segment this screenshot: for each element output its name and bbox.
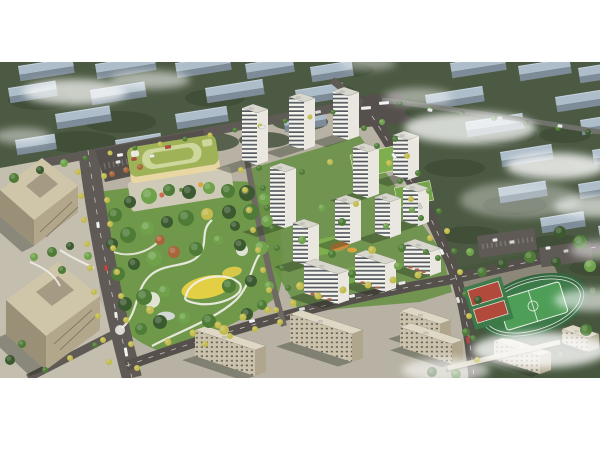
tree xyxy=(92,342,98,348)
tree xyxy=(84,252,92,260)
tree xyxy=(264,205,270,211)
tree xyxy=(128,341,134,347)
tree xyxy=(269,225,275,231)
tree xyxy=(161,216,173,228)
tree xyxy=(418,215,424,221)
tree xyxy=(408,196,414,202)
tree xyxy=(202,341,208,347)
tree xyxy=(213,235,223,245)
vehicle xyxy=(96,222,100,228)
tree xyxy=(273,307,279,313)
mist-cloud xyxy=(110,71,190,89)
tree xyxy=(128,258,140,270)
tree xyxy=(114,269,120,275)
tree xyxy=(315,293,322,300)
tree xyxy=(107,221,113,227)
tree xyxy=(462,291,468,297)
tree xyxy=(155,235,165,245)
mist-cloud xyxy=(384,88,452,106)
tree xyxy=(124,196,136,208)
tree xyxy=(178,210,194,226)
tree xyxy=(242,187,248,193)
vehicle xyxy=(545,246,550,250)
tree xyxy=(415,170,421,176)
tree xyxy=(260,267,266,273)
tree xyxy=(353,201,359,207)
tree xyxy=(227,333,233,339)
tree xyxy=(415,272,422,279)
vehicle xyxy=(115,160,120,164)
tree xyxy=(394,262,402,270)
tree xyxy=(386,160,392,166)
tree xyxy=(374,143,380,149)
tree xyxy=(182,185,196,199)
tree xyxy=(390,277,397,284)
vehicle xyxy=(131,157,136,161)
tree xyxy=(298,236,306,244)
tree xyxy=(444,228,450,234)
tree xyxy=(338,218,346,226)
tree xyxy=(189,242,203,256)
vehicle xyxy=(563,249,568,253)
tree xyxy=(146,250,162,266)
tree xyxy=(279,265,285,271)
tree xyxy=(109,171,115,177)
tree xyxy=(409,207,415,213)
aerial-rendering-figure xyxy=(0,0,600,450)
tree xyxy=(551,257,561,267)
tree xyxy=(584,260,596,272)
tree xyxy=(36,166,44,174)
tree xyxy=(327,159,333,165)
tree xyxy=(554,226,566,238)
tree xyxy=(123,167,129,173)
vehicle xyxy=(492,238,497,242)
tree xyxy=(585,129,591,135)
tree xyxy=(104,197,110,203)
tree xyxy=(265,307,272,314)
mist-cloud xyxy=(404,112,536,144)
tree xyxy=(477,267,487,277)
tree xyxy=(451,248,457,254)
tree xyxy=(87,265,93,271)
tree xyxy=(100,337,106,343)
tree xyxy=(470,335,476,341)
tree xyxy=(423,249,429,255)
tree xyxy=(5,355,15,365)
vehicle xyxy=(379,101,389,105)
tree xyxy=(379,119,385,125)
tree xyxy=(118,293,124,299)
vehicle xyxy=(149,154,154,158)
tree xyxy=(435,255,441,261)
tree xyxy=(340,287,347,294)
tree xyxy=(497,259,507,269)
tree xyxy=(78,193,84,199)
tree xyxy=(42,367,48,373)
tree xyxy=(474,296,482,304)
tree xyxy=(9,173,19,183)
tree xyxy=(153,315,167,329)
tree xyxy=(141,188,157,204)
tree xyxy=(134,365,140,371)
tree xyxy=(233,128,238,133)
tree xyxy=(168,246,180,258)
tree xyxy=(524,251,536,263)
tree xyxy=(266,287,272,293)
tree xyxy=(466,313,472,319)
tree xyxy=(84,241,90,247)
tree xyxy=(158,285,170,297)
tree xyxy=(221,184,235,198)
tree xyxy=(95,313,101,319)
tree xyxy=(580,324,592,336)
tree xyxy=(240,314,247,321)
tree xyxy=(283,119,288,124)
tree xyxy=(163,184,175,196)
tree xyxy=(348,270,356,278)
tree xyxy=(146,306,154,314)
tree xyxy=(230,221,240,231)
tree xyxy=(60,159,68,167)
tree xyxy=(108,208,122,222)
tree xyxy=(136,289,152,305)
tree xyxy=(245,275,257,287)
tree xyxy=(234,239,246,251)
tree xyxy=(258,193,270,205)
tree xyxy=(202,314,216,328)
tree xyxy=(165,339,172,346)
tree xyxy=(58,266,66,274)
tree xyxy=(255,247,261,253)
rendering-svg xyxy=(0,0,600,450)
tree xyxy=(398,244,406,252)
tree xyxy=(158,142,163,147)
tree xyxy=(30,253,38,261)
tree xyxy=(106,359,112,365)
tree xyxy=(299,169,305,175)
tree xyxy=(137,164,143,170)
tree xyxy=(290,300,297,307)
tree xyxy=(110,245,116,251)
tree xyxy=(91,289,97,295)
tree xyxy=(118,297,132,311)
tree xyxy=(252,326,258,332)
tree xyxy=(383,223,389,229)
tree xyxy=(392,136,398,142)
tree xyxy=(67,355,73,361)
tree xyxy=(368,246,376,254)
tree xyxy=(208,133,213,138)
tree xyxy=(18,340,26,348)
tree xyxy=(75,169,81,175)
tree xyxy=(318,204,326,212)
tree xyxy=(222,205,236,219)
vehicle xyxy=(114,312,118,318)
tree xyxy=(397,178,403,184)
tree xyxy=(361,125,367,131)
vehicle xyxy=(557,124,562,128)
tree xyxy=(246,207,252,213)
tree xyxy=(466,248,474,256)
tree xyxy=(135,323,147,335)
tree xyxy=(140,221,154,235)
tree xyxy=(462,328,470,336)
tree-mass xyxy=(425,159,485,177)
mist-cloud xyxy=(23,79,127,105)
tree xyxy=(81,217,87,223)
tree xyxy=(308,115,313,120)
park-plaza xyxy=(115,325,125,335)
tree xyxy=(183,137,188,142)
scene xyxy=(0,54,600,382)
tree xyxy=(108,151,113,156)
page xyxy=(0,0,600,450)
tree xyxy=(328,250,336,258)
tree xyxy=(260,185,266,191)
tree xyxy=(238,167,244,173)
tree xyxy=(426,188,432,194)
vehicle xyxy=(361,106,371,110)
tree xyxy=(436,208,442,214)
tree xyxy=(178,312,190,324)
tree xyxy=(83,156,88,161)
tree xyxy=(123,317,129,323)
tree xyxy=(250,227,256,233)
tree xyxy=(190,330,197,337)
tree xyxy=(274,245,280,251)
vehicle xyxy=(509,240,514,244)
tree xyxy=(331,110,336,115)
tree xyxy=(404,153,410,159)
courtyard-playground xyxy=(347,248,357,253)
tree xyxy=(222,279,236,293)
tree xyxy=(365,282,372,289)
tree xyxy=(427,235,433,241)
tree xyxy=(120,227,136,243)
tree xyxy=(256,165,262,171)
tree xyxy=(457,269,463,275)
tree xyxy=(239,185,255,201)
tree xyxy=(285,285,291,291)
tree xyxy=(277,319,283,325)
tree xyxy=(203,182,215,194)
tree xyxy=(133,146,138,151)
tree xyxy=(47,247,57,257)
vehicle xyxy=(427,108,432,112)
tree xyxy=(201,208,213,220)
tree xyxy=(296,282,304,290)
tree xyxy=(101,173,107,179)
tree xyxy=(215,322,222,329)
tree xyxy=(66,242,74,250)
vehicle xyxy=(104,265,108,271)
mist-cloud xyxy=(460,182,580,218)
